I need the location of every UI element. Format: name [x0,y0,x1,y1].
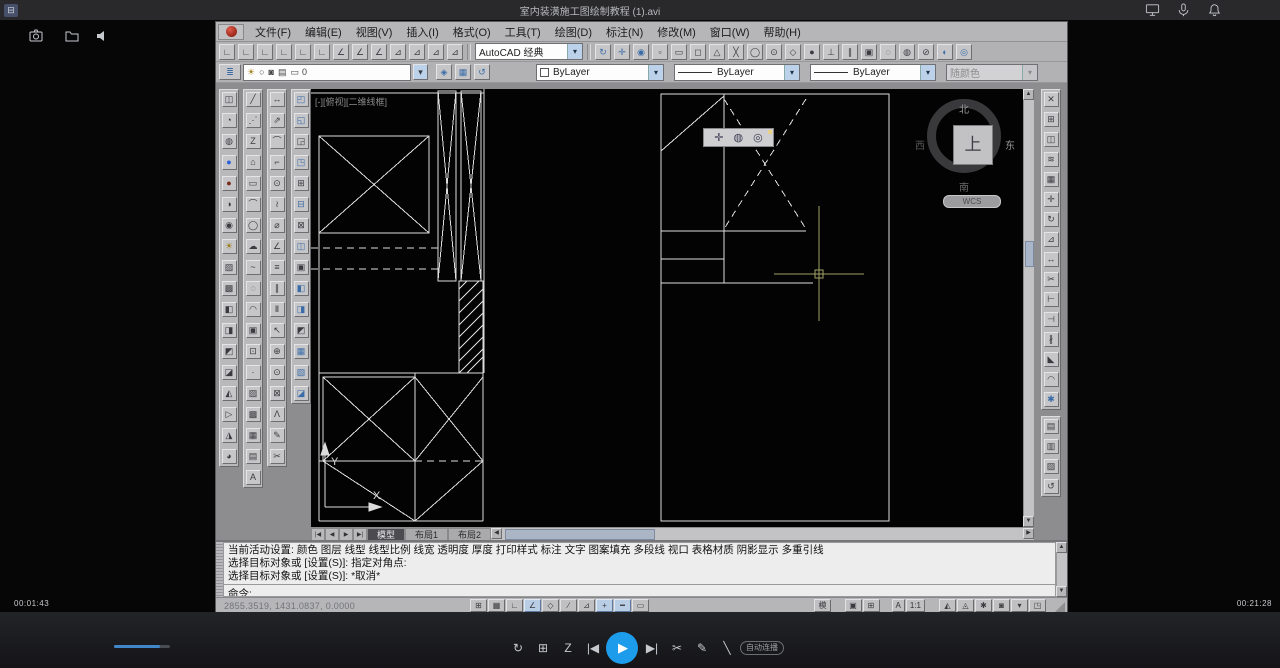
zoom-realtime-icon[interactable]: ◉ [633,44,649,60]
tab-next-button[interactable]: ▶ [339,528,353,541]
layer-freeze-icon[interactable]: ○ [259,65,264,80]
scroll-down-icon[interactable]: ▼ [1023,516,1034,527]
ortho-toggle[interactable]: ∟ [506,599,523,612]
toolbar-lock-button[interactable]: ◙ [993,599,1010,612]
app-menu-button[interactable] [218,24,244,40]
light-icon[interactable]: ☀ [222,239,237,254]
chamfer-icon[interactable]: ◣ [1044,352,1059,367]
rectangle-icon[interactable]: ▭ [246,176,261,191]
workspace-switch-button[interactable]: ✱ [975,599,992,612]
tool-icon[interactable]: ⊠ [294,218,309,233]
layers-toolbar: ≣ ☀○◙▤▭ 0 ▾ ◈▦↺ ByLayer ByLayer [216,62,1067,83]
autocad-logo-icon [226,26,237,37]
annotation-visibility-button[interactable]: ◭ [939,599,956,612]
tool-icon[interactable]: ▣ [294,260,309,275]
layer-lock-icon[interactable]: ◙ [269,65,274,80]
chevron-down-icon[interactable] [920,65,935,80]
folder-icon[interactable] [64,28,80,44]
mirror-icon[interactable]: ◫ [1044,132,1059,147]
svg-text:X: X [373,490,381,502]
sphere-red-icon[interactable]: ● [222,176,237,191]
shade-icon[interactable]: ◑ [222,197,237,212]
baseline-dim-icon[interactable]: ∥ [270,281,285,296]
screenshot-icon[interactable] [28,28,44,44]
total-time: 00:21:28 [1237,599,1272,608]
coordinates-readout: 2855.3519, 1431.0837, 0.0000 [224,601,374,611]
osnap-from-icon[interactable]: ▭ [671,44,687,60]
replay-button[interactable]: ↻ [510,640,526,656]
navbar-badge [768,130,772,134]
gradient-icon[interactable]: ▩ [246,407,261,422]
named-views-icon[interactable]: ◫ [222,92,237,107]
osnap-extension-icon[interactable]: ◯ [747,44,763,60]
arc-icon[interactable]: ⌒ [246,197,261,212]
layer-properties-icon[interactable]: ≣ [219,64,241,80]
standard-toolbar: ∟∟∟∟∟∟∠∠∠⊿⊿⊿⊿ AutoCAD 经典 ↻✛◉▫▭◻△╳◯⊙◇●⊥∥▣… [216,42,1067,62]
grid-toggle[interactable]: ▦ [488,599,505,612]
clip-button[interactable]: ✂ [669,640,685,656]
otrack-toggle[interactable]: ∕ [560,599,577,612]
osnap-parallel-icon[interactable]: ∥ [842,44,858,60]
osnap-intersection-icon[interactable]: ╳ [728,44,744,60]
speed-button[interactable]: Z [560,640,576,656]
cad-statusbar: 2855.3519, 1431.0837, 0.0000 ⊞▦∟∠◇∕⊿+━▭ … [216,597,1067,613]
player-controls-bar [0,612,1280,668]
tool-icon[interactable]: ◩ [294,323,309,338]
layer-dropdown[interactable]: ☀○◙▤▭ 0 [243,64,411,81]
cleanscreen-button[interactable]: ◳ [1029,599,1046,612]
quick-view-layouts-button[interactable]: ▣ [845,599,862,612]
osnap-center-icon[interactable]: ⊙ [766,44,782,60]
extend-icon[interactable]: ⊢ [1044,292,1059,307]
walk-icon[interactable]: ◪ [222,365,237,380]
horizontal-scroll-thumb[interactable] [505,529,655,540]
animation-icon[interactable]: ▷ [222,407,237,422]
dim-edit-icon[interactable]: ✎ [270,428,285,443]
linetype-sample [678,72,712,73]
rotate-icon[interactable]: ↻ [1044,212,1059,227]
menu-window[interactable]: 窗口(W) [703,24,757,40]
command-history-line: 当前活动设置: 颜色 图层 线型 线型比例 线宽 透明度 厚度 打印样式 标注 … [228,544,1051,557]
menu-edit[interactable]: 编辑(E) [298,24,349,40]
microphone-icon[interactable] [1176,3,1191,17]
menu-insert[interactable]: 插入(I) [399,24,445,40]
osnap-settings-icon[interactable]: ◐ [937,44,953,60]
layer-states-icon[interactable]: ▦ [455,64,471,80]
model-space-button[interactable]: 模型 [814,599,831,612]
command-history[interactable]: 当前活动设置: 颜色 图层 线型 线型比例 线宽 透明度 厚度 打印样式 标注 … [224,543,1055,584]
command-prompt[interactable]: 命令: [224,584,1055,597]
copy-icon[interactable]: ⊞ [1044,112,1059,127]
ellipse-icon[interactable]: ◌ [246,281,261,296]
annotation-scale-group: A 1:1 [892,599,925,612]
scroll-up-icon[interactable]: ▲ [1023,89,1034,100]
copy-nested-icon[interactable]: ▥ [1044,439,1059,454]
dyn-toggle[interactable]: + [596,599,613,612]
radius-dim-icon[interactable]: ⊙ [270,176,285,191]
make-object-layer-current-icon[interactable]: ◈ [436,64,452,80]
linetype-dropdown[interactable]: ByLayer [674,64,800,81]
drawing-canvas[interactable]: [-][俯视][二维线框] Y X [311,89,1023,527]
viewport-toolbar-vertical: ◰◱◲◳⊞⊟⊠◫▣◧◨◩▦▧◪ [291,89,311,404]
undo-tool-icon[interactable]: ↺ [1044,479,1059,494]
ucs-view-icon[interactable]: ∟ [314,44,330,60]
scroll-down-icon[interactable]: ▼ [1056,586,1067,597]
menu-draw[interactable]: 绘图(D) [548,24,599,40]
autoplay-toggle[interactable]: 自动连播 [740,641,784,655]
ucs-axis-icon: Y X [313,437,393,523]
command-history-line: 选择目标对象或 [设置(S)]: 指定对角点: [228,557,1051,570]
menu-dimension[interactable]: 标注(N) [599,24,650,40]
layer-name: 0 [302,65,307,80]
recorder-logo-icon[interactable] [4,4,18,17]
hatch-icon[interactable]: ▨ [246,386,261,401]
player-topbar: 室内装潢施工图绘制教程 (1).avi [0,0,1280,20]
cad-menubar: 文件(F)编辑(E)视图(V)插入(I)格式(O)工具(T)绘图(D)标注(N)… [216,22,1067,42]
ucs-named-icon[interactable]: ⊿ [447,44,463,60]
quick-view-drawings-button[interactable]: ⊞ [863,599,880,612]
ellipse-arc-icon[interactable]: ◠ [246,302,261,317]
zoom-window-icon[interactable]: ◕ [222,449,237,464]
steering-wheel-icon[interactable]: ✛ [714,131,723,144]
viewcube[interactable]: 上 北 东 南 西 WCS [909,91,1019,211]
offset-icon[interactable]: ≋ [1044,152,1059,167]
command-history-line: 选择目标对象或 [设置(S)]: *取消* [228,570,1051,583]
break-at-point-icon[interactable]: ⊣ [1044,312,1059,327]
layer-visibility-icon[interactable]: ☀ [247,65,255,80]
scroll-up-icon[interactable]: ▲ [1056,542,1067,553]
prev-button[interactable]: |◀ [585,640,601,656]
osnap-insert-icon[interactable]: ▣ [861,44,877,60]
tab-layout2[interactable]: 布局2 [448,528,491,541]
hatch-edit-icon[interactable]: ▨ [1044,459,1059,474]
volume-level[interactable] [114,645,160,648]
region-icon[interactable]: ▦ [246,428,261,443]
tool-icon[interactable]: ◧ [294,281,309,296]
ucs-origin-icon[interactable]: ∠ [333,44,349,60]
tab-first-button[interactable]: |◀ [311,528,325,541]
circle-icon[interactable]: ◯ [246,218,261,233]
make-block-icon[interactable]: ⊡ [246,344,261,359]
display-icon[interactable] [1145,3,1160,17]
chevron-down-icon[interactable] [784,65,799,80]
fly-icon[interactable]: ◭ [222,386,237,401]
volume-slider[interactable] [114,645,170,648]
tolerance-icon[interactable]: ⊕ [270,344,285,359]
viewcube-face-top[interactable]: 上 [953,125,993,165]
ucs-x-icon[interactable]: ⊿ [390,44,406,60]
table-icon[interactable]: ▤ [246,449,261,464]
volume-icon[interactable] [94,28,110,44]
layer-vpfreeze-icon[interactable]: ▭ [290,65,299,80]
tool-icon[interactable]: ⊞ [294,176,309,191]
render-icon[interactable]: ◍ [222,134,237,149]
spline-icon[interactable]: ~ [246,260,261,275]
camera-icon[interactable]: ◉ [222,218,237,233]
motion-path-icon[interactable]: ◮ [222,428,237,443]
vertical-scroll-thumb[interactable] [1025,241,1034,267]
lwt-toggle[interactable]: ━ [614,599,631,612]
jogged-dim-icon[interactable]: ≀ [270,197,285,212]
osnap-temporary-icon[interactable]: ▫ [652,44,668,60]
osnap-node-icon[interactable]: ◌ [880,44,896,60]
polygon-icon[interactable]: ⌂ [246,155,261,170]
continue-dim-icon[interactable]: Ⅱ [270,302,285,317]
diameter-dim-icon[interactable]: ⌀ [270,218,285,233]
quick-dim-icon[interactable]: ≡ [270,260,285,275]
scroll-right-icon[interactable]: ▶ [1023,528,1034,539]
inspection-icon[interactable]: ⊠ [270,386,285,401]
tool-icon[interactable]: ⊟ [294,197,309,212]
ordinate-dim-icon[interactable]: ⌐ [270,155,285,170]
section-plane-icon[interactable]: ◧ [222,302,237,317]
navigation-toolbar: ✛◍◎ [703,128,774,147]
wcs-button[interactable]: WCS [943,195,1001,208]
center-mark-icon[interactable]: ⊙ [270,365,285,380]
osnap-none-icon[interactable]: ⊘ [918,44,934,60]
break-icon[interactable]: ∦ [1044,332,1059,347]
tab-last-button[interactable]: ▶| [353,528,367,541]
osnap-quadrant-icon[interactable]: ◇ [785,44,801,60]
tool-icon[interactable]: ◨ [294,302,309,317]
ucs-y-icon[interactable]: ⊿ [409,44,425,60]
tool-icon[interactable]: ◫ [294,239,309,254]
pan-hand-icon[interactable]: ◍ [734,131,744,144]
ucs-icon[interactable]: ∟ [219,44,235,60]
construction-line-icon[interactable]: ⋰ [246,113,261,128]
next-button[interactable]: ▶| [644,640,660,656]
layer-dropdown-arrow-icon[interactable]: ▾ [413,64,428,80]
draw-toolbar-vertical: ╱⋰Z⌂▭⌒◯☁~◌◠▣⊡·▨▩▦▤A [243,89,263,488]
osnap-endpoint-icon[interactable]: ◻ [690,44,706,60]
slice-icon[interactable]: ◩ [222,344,237,359]
play-button[interactable] [606,632,638,664]
erase-icon[interactable]: ✕ [1044,92,1059,107]
toolbar-separator [587,44,591,60]
viewcube-west-label[interactable]: 西 [915,137,925,152]
ucs-3point-icon[interactable]: ∠ [371,44,387,60]
note-button[interactable]: ✎ [694,640,710,656]
line-icon[interactable]: ╱ [246,92,261,107]
viewport-label[interactable]: [-][俯视][二维线框] [315,95,387,108]
osnap-tangent-icon[interactable]: ● [804,44,820,60]
linear-dim-icon[interactable]: ↔ [270,92,285,107]
fillet-icon[interactable]: ◠ [1044,372,1059,387]
revcloud-icon[interactable]: ☁ [246,239,261,254]
menu-help[interactable]: 帮助(H) [757,24,808,40]
orbit-icon[interactable]: ◎ [753,131,763,144]
views-toolbar-vertical: ◫◔◍●●◑◉☀▨▩◧◨◩◪◭▷◮◕ [219,89,239,467]
canvas-vertical-scrollbar[interactable]: ▲ ▼ [1023,89,1034,527]
crosshair-cursor [774,206,864,321]
point-icon[interactable]: · [246,365,261,380]
array-tool-icon[interactable]: ▤ [1044,419,1059,434]
stretch-icon[interactable]: ↔ [1044,252,1059,267]
ucs-z-icon[interactable]: ⊿ [428,44,444,60]
dimension-toolbar-vertical: ↔⇗⌒⌐⊙≀⌀∠≡∥Ⅱ↖⊕⊙⊠Λ✎✂ [267,89,287,467]
ucs-object-icon[interactable]: ∟ [295,44,311,60]
ucs-world-icon[interactable]: ∟ [238,44,254,60]
ucs-previous-icon[interactable]: ∟ [257,44,273,60]
viewcube-north-label[interactable]: 北 [909,101,1019,116]
osnap-toggle[interactable]: ◇ [542,599,559,612]
qp-toggle[interactable]: ▭ [632,599,649,612]
tool-icon[interactable]: ◰ [294,92,309,107]
marker-button[interactable]: ╲ [719,640,735,656]
snap-toggle[interactable]: ⊞ [470,599,487,612]
tab-prev-button[interactable]: ◀ [325,528,339,541]
redo-icon[interactable]: ↻ [595,44,611,60]
polyline-icon[interactable]: Z [246,134,261,149]
arc-length-icon[interactable]: ⌒ [270,134,285,149]
svg-text:Y: Y [331,456,339,468]
layer-previous-icon[interactable]: ↺ [474,64,490,80]
ducs-toggle[interactable]: ⊿ [578,599,595,612]
ucs-zaxis-icon[interactable]: ∠ [352,44,368,60]
cad-workspace: ◫◔◍●●◑◉☀▨▩◧◨◩◪◭▷◮◕ ╱⋰Z⌂▭⌒◯☁~◌◠▣⊡·▨▩▦▤A ↔… [216,83,1067,541]
mtext-icon[interactable]: A [246,470,261,485]
leader-icon[interactable]: ↖ [270,323,285,338]
menu-view[interactable]: 视图(V) [349,24,400,40]
chevron-down-icon [1022,65,1037,80]
command-window-grip[interactable] [216,542,223,597]
menu-file[interactable]: 文件(F) [248,24,298,40]
move-icon[interactable]: ✛ [1044,192,1059,207]
plotstyle-dropdown: 随颜色 [946,64,1038,81]
scale-icon[interactable]: ⊿ [1044,232,1059,247]
tool-icon[interactable]: ◱ [294,113,309,128]
aligned-dim-icon[interactable]: ⇗ [270,113,285,128]
notification-icon[interactable] [1207,3,1222,17]
layer-plot-icon[interactable]: ▤ [278,65,287,80]
viewcube-south-label[interactable]: 南 [909,179,1019,194]
dim-style-icon[interactable]: ✂ [270,449,285,464]
tool-icon[interactable]: ◳ [294,155,309,170]
osnap-midpoint-icon[interactable]: △ [709,44,725,60]
color-swatch [540,68,549,77]
sphere-blue-icon[interactable]: ● [222,155,237,170]
annotation-icon[interactable]: A [892,599,905,612]
scroll-left-icon[interactable]: ◀ [491,528,502,539]
tool-icon[interactable]: ◲ [294,134,309,149]
orbit-3d-icon[interactable]: ◔ [222,113,237,128]
lineweight-dropdown[interactable]: ByLayer [810,64,936,81]
tool-icon[interactable]: ▦ [294,344,309,359]
modify-toolbar-vertical: ✕⊞◫≋▦✛↻⊿↔✂⊢⊣∦◣◠✱ ▤▥▨↺ [1041,89,1061,497]
layout-tab-bar: |◀◀▶▶| 模型布局1布局2 ◀ ▶ [311,527,1034,541]
polar-toggle[interactable]: ∠ [524,599,541,612]
explode-icon[interactable]: ✱ [1044,392,1059,407]
color-dropdown[interactable]: ByLayer [536,64,664,81]
episodes-button[interactable]: ⊞ [535,640,551,656]
materials-icon[interactable]: ▨ [222,260,237,275]
insert-block-icon[interactable]: ▣ [246,323,261,338]
command-scrollbar[interactable]: ▲ ▼ [1056,542,1067,597]
orbit-icon[interactable]: ◎ [956,44,972,60]
trim-icon[interactable]: ✂ [1044,272,1059,287]
tab-layout1[interactable]: 布局1 [405,528,448,541]
video-player: 室内装潢施工图绘制教程 (1).avi 文件(F)编辑(E)视图(V)插入(I)… [0,0,1280,668]
array-icon[interactable]: ▦ [1044,172,1059,187]
chevron-down-icon[interactable] [648,65,663,80]
video-title: 室内装潢施工图绘制教程 (1).avi [440,3,740,18]
angular-dim-icon[interactable]: ∠ [270,239,285,254]
current-time: 00:01:43 [14,599,49,608]
section-icon[interactable]: ◨ [222,323,237,338]
ucs-face-icon[interactable]: ∟ [276,44,292,60]
annotation-scale-button[interactable]: 1:1 [906,599,925,612]
tool-icon[interactable]: ▧ [294,365,309,380]
viewcube-east-label[interactable]: 东 [1005,137,1015,152]
status-menu-button[interactable]: ▾ [1011,599,1028,612]
command-window: 当前活动设置: 颜色 图层 线型 线型比例 线宽 透明度 厚度 打印样式 标注 … [216,541,1067,597]
tab-model[interactable]: 模型 [367,528,405,541]
menu-modify[interactable]: 修改(M) [650,24,703,40]
osnap-perpendicular-icon[interactable]: ⊥ [823,44,839,60]
lineweight-sample [814,72,848,73]
menu-format[interactable]: 格式(O) [446,24,498,40]
tool-icon[interactable]: ◪ [294,386,309,401]
toolbar-separator [467,44,471,60]
canvas-horizontal-scrollbar[interactable]: ◀ ▶ [491,528,1034,541]
annotation-autoscale-button[interactable]: ◬ [957,599,974,612]
jog-line-icon[interactable]: Λ [270,407,285,422]
osnap-nearest-icon[interactable]: ◍ [899,44,915,60]
workspace-dropdown[interactable]: AutoCAD 经典 [475,43,583,60]
chevron-down-icon[interactable] [567,44,582,59]
mapping-icon[interactable]: ▩ [222,281,237,296]
cad-window: 文件(F)编辑(E)视图(V)插入(I)格式(O)工具(T)绘图(D)标注(N)… [215,21,1068,612]
menu-tools[interactable]: 工具(T) [498,24,548,40]
pan-icon[interactable]: ✛ [614,44,630,60]
